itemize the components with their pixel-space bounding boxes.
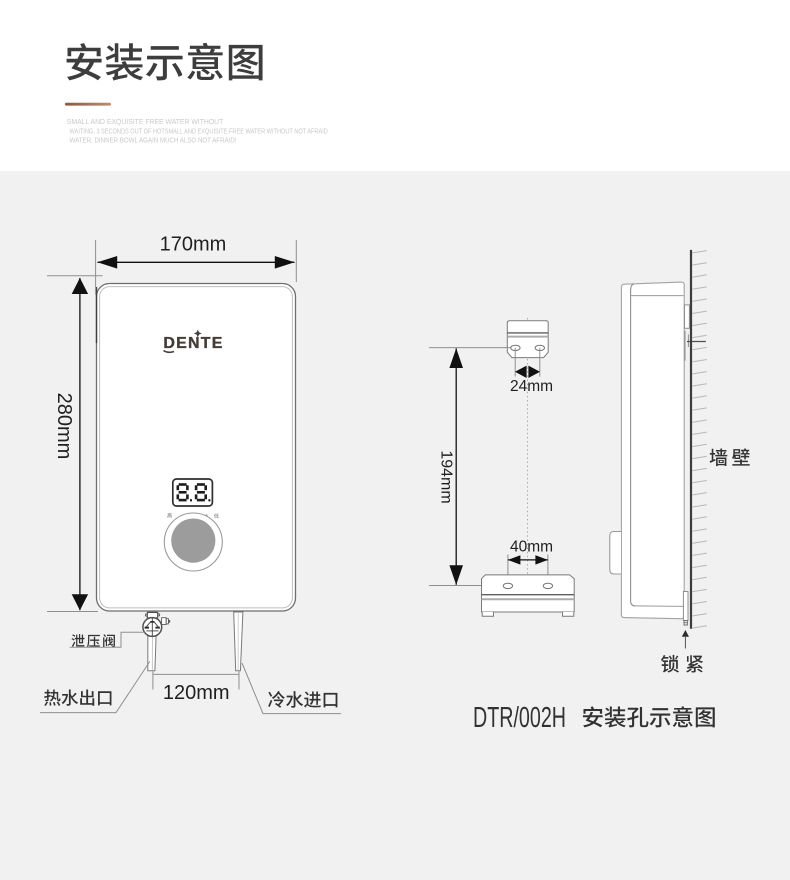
svg-text:DTR/002H: DTR/002H (473, 702, 566, 734)
svg-text:170mm: 170mm (160, 234, 227, 256)
svg-text:40mm: 40mm (510, 539, 553, 556)
svg-text:120mm: 120mm (163, 682, 230, 704)
svg-text:WAITING, 3 SECONDS OUT OF HOTS: WAITING, 3 SECONDS OUT OF HOTSMALL AND E… (70, 126, 328, 135)
svg-text:SMALL AND EXQUISITE FREE WATER: SMALL AND EXQUISITE FREE WATER WITHOUT (67, 117, 224, 126)
svg-text:WATER, DINNER BOWL AGAIN MUCH: WATER, DINNER BOWL AGAIN MUCH ALSO NOT A… (70, 135, 237, 144)
svg-text:194mm: 194mm (438, 450, 455, 503)
svg-text:DENTE: DENTE (163, 335, 223, 352)
svg-text:280mm: 280mm (53, 393, 75, 460)
svg-text:24mm: 24mm (510, 378, 553, 395)
